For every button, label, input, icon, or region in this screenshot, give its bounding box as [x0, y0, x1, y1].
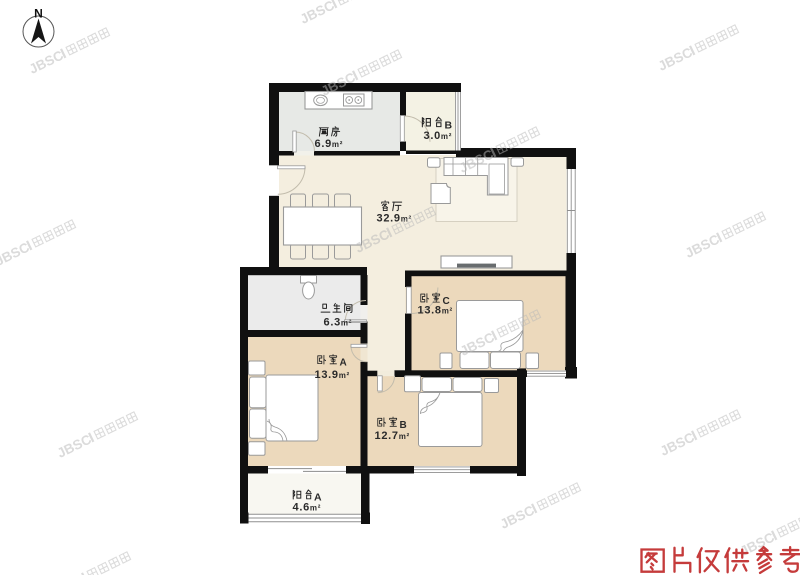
svg-text:4.6m²: 4.6m²: [293, 502, 322, 514]
svg-text:3.0m²: 3.0m²: [424, 130, 453, 142]
svg-text:B: B: [400, 420, 407, 431]
svg-text:N: N: [34, 7, 43, 21]
svg-text:A: A: [340, 358, 347, 369]
svg-text:C: C: [443, 296, 450, 307]
svg-text:6.9m²: 6.9m²: [315, 138, 344, 150]
svg-text:B: B: [445, 120, 453, 132]
svg-text:13.8m²: 13.8m²: [418, 304, 453, 316]
svg-text:A: A: [314, 492, 322, 504]
svg-text:13.9m²: 13.9m²: [315, 369, 350, 381]
svg-text:12.7m²: 12.7m²: [375, 430, 410, 442]
svg-text:6.3m²: 6.3m²: [324, 317, 353, 329]
svg-text:32.9m²: 32.9m²: [377, 213, 412, 225]
